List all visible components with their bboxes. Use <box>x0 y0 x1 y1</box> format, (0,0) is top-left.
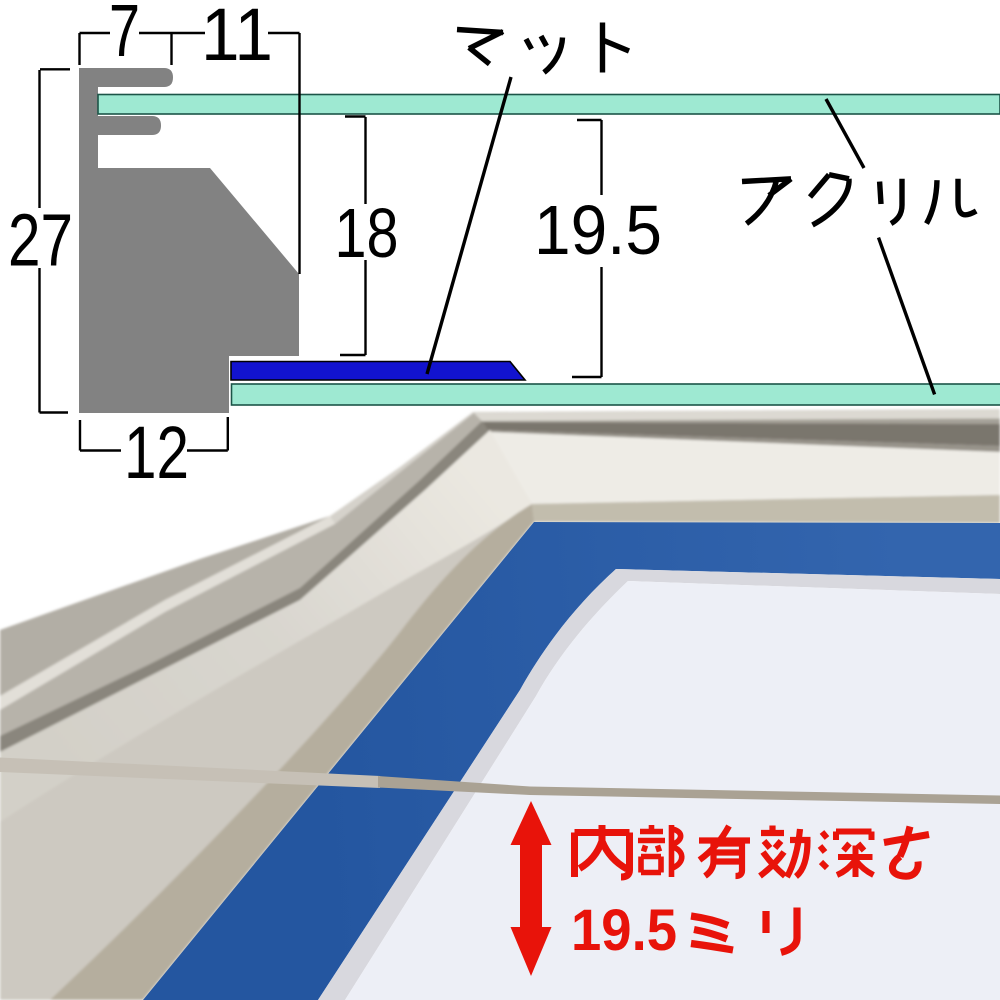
svg-text:18: 18 <box>335 194 399 272</box>
svg-text:27: 27 <box>8 199 73 282</box>
svg-text:19.5: 19.5 <box>534 191 662 269</box>
svg-text:11: 11 <box>201 0 273 76</box>
svg-text:7: 7 <box>109 0 140 72</box>
svg-text:12: 12 <box>124 411 189 494</box>
svg-text:19.5: 19.5 <box>571 898 677 963</box>
